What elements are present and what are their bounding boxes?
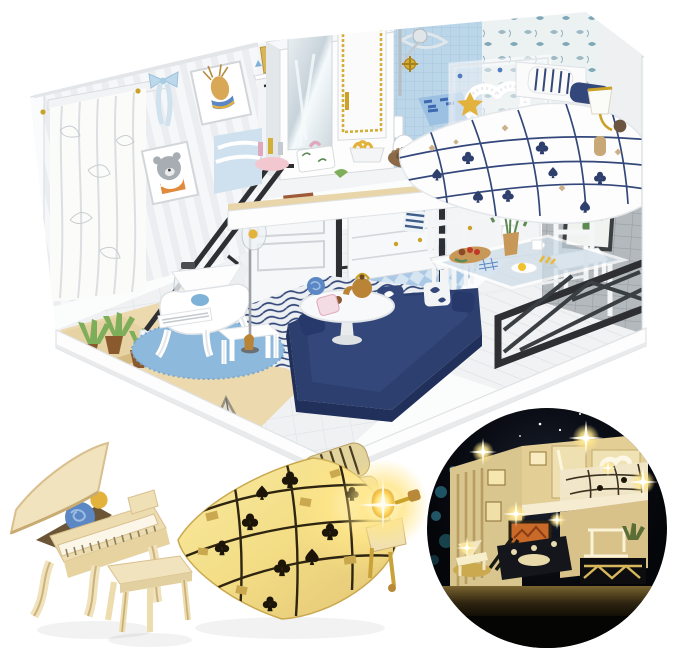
left-wall-outer-frame: [26, 94, 44, 316]
night-coffee-table: [518, 554, 550, 566]
product-image: [0, 0, 679, 651]
closeup-grand-piano: [11, 443, 192, 647]
lit-bedside-lamp: [337, 459, 429, 551]
gold-ornament: [244, 334, 254, 350]
right-wall-outer-frame: [642, 56, 656, 340]
wardrobe-gold-door: [338, 20, 386, 141]
main-dollhouse: [26, 8, 656, 478]
gold-pin: [40, 109, 45, 114]
closeup-lit-bed: [178, 435, 430, 639]
blue-cloth: [191, 294, 209, 306]
wood-bed-leg: [594, 136, 606, 156]
lamp-wall-mount: [614, 120, 627, 133]
piano-stool-closeup: [108, 556, 192, 632]
striped-pillow: [527, 66, 573, 96]
dollhouse-photo-canvas: [0, 0, 679, 651]
night-view-inset: [427, 408, 667, 651]
vanity-tray: [255, 157, 289, 171]
bear-art-frame: [142, 142, 198, 204]
deer-art-frame: [191, 59, 252, 124]
blue-rose: [307, 277, 325, 295]
night-base-glow: [427, 586, 667, 620]
wardrobe-mirror-door: [288, 33, 332, 150]
gold-pin: [135, 88, 140, 93]
night-chevron-railing: [580, 558, 646, 584]
